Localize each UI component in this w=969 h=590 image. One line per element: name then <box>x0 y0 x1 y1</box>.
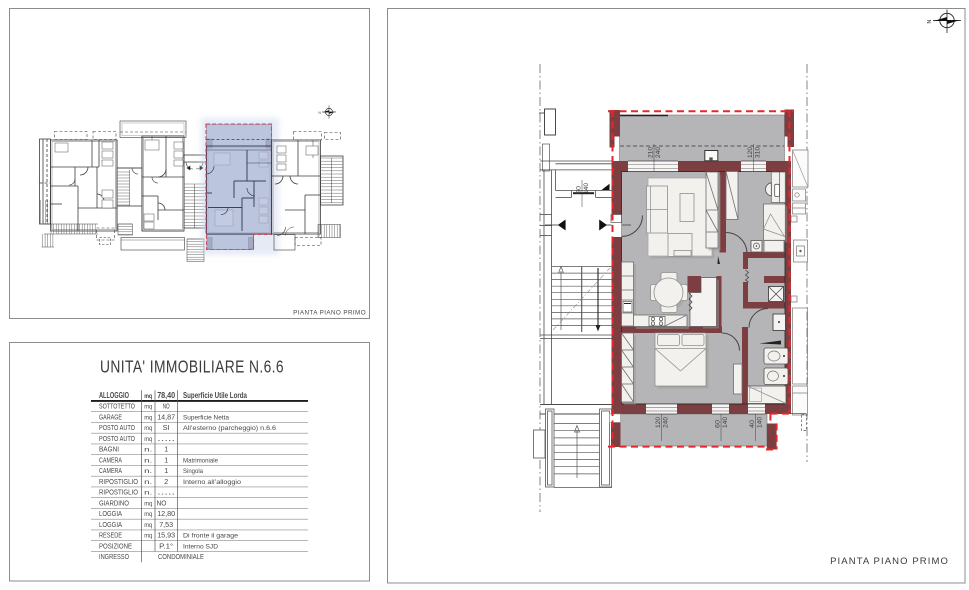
svg-text:CAMERA: CAMERA <box>99 455 122 464</box>
svg-text:POSIZIONE: POSIZIONE <box>99 542 132 551</box>
svg-text:SOTTOTETTO: SOTTOTETTO <box>99 402 135 411</box>
svg-text:mq: mq <box>144 414 152 421</box>
svg-text:CAMERA: CAMERA <box>99 466 122 475</box>
svg-text:RIPOSTIGLIO: RIPOSTIGLIO <box>99 477 138 486</box>
svg-text:mq: mq <box>144 436 152 443</box>
svg-text:n.: n. <box>144 457 152 464</box>
svg-text:1: 1 <box>164 445 168 454</box>
svg-text:mq: mq <box>144 533 152 540</box>
svg-text:90: 90 <box>576 185 582 194</box>
svg-text:120: 120 <box>656 416 662 428</box>
svg-text:mq: mq <box>144 425 152 432</box>
svg-text:60: 60 <box>715 419 721 428</box>
svg-text:ALLOGGIO: ALLOGGIO <box>99 391 129 400</box>
svg-text:Di fronte il garage: Di fronte il garage <box>183 533 238 540</box>
svg-text:1: 1 <box>164 466 168 475</box>
svg-text:240: 240 <box>664 416 670 428</box>
svg-text:1: 1 <box>164 455 168 464</box>
svg-text:15,93: 15,93 <box>157 531 175 540</box>
svg-text:120: 120 <box>748 146 754 158</box>
svg-text:2: 2 <box>164 477 168 486</box>
svg-text:140: 140 <box>584 182 590 194</box>
svg-text:RESEDE: RESEDE <box>99 531 122 540</box>
svg-text:Matrimoniale: Matrimoniale <box>183 457 218 464</box>
svg-text:POSTO AUTO: POSTO AUTO <box>99 434 135 443</box>
svg-text:7,53: 7,53 <box>159 520 173 529</box>
svg-text:78,40: 78,40 <box>157 391 175 400</box>
svg-text:PIANTA PIANO PRIMO: PIANTA PIANO PRIMO <box>293 310 366 317</box>
svg-text:mq: mq <box>144 522 152 529</box>
svg-text:Superficie Netta: Superficie Netta <box>183 414 229 421</box>
svg-text:NO: NO <box>157 498 167 507</box>
svg-text:RIPOSTIGLIO: RIPOSTIGLIO <box>99 488 138 497</box>
svg-text:n.: n. <box>144 490 152 497</box>
svg-text:.....: ..... <box>157 434 175 443</box>
svg-text:BAGNI: BAGNI <box>99 445 119 454</box>
svg-text:N: N <box>927 20 933 24</box>
svg-text:n.: n. <box>144 447 152 454</box>
svg-text:GIARDINO: GIARDINO <box>99 498 129 507</box>
svg-text:P.1°: P.1° <box>159 542 173 551</box>
svg-text:.....: ..... <box>157 488 175 497</box>
svg-text:INGRESSO: INGRESSO <box>99 552 129 561</box>
svg-text:140: 140 <box>758 416 764 428</box>
svg-text:140: 140 <box>723 416 729 428</box>
svg-text:LOGGIA: LOGGIA <box>99 520 122 529</box>
svg-text:All’esterno (parcheggio) n.6: All’esterno (parcheggio) n.6.6 <box>183 425 276 432</box>
svg-text:n.: n. <box>144 468 152 475</box>
svg-text:Interno SJD: Interno SJD <box>183 544 218 551</box>
svg-text:n.: n. <box>144 479 152 486</box>
svg-text:SI: SI <box>163 423 170 432</box>
svg-text:Interno all’alloggio: Interno all’alloggio <box>183 479 241 486</box>
svg-text:NO: NO <box>163 402 170 411</box>
svg-text:GARAGE: GARAGE <box>99 412 122 421</box>
svg-text:CONDOMINIALE: CONDOMINIALE <box>158 552 204 561</box>
svg-text:12,80: 12,80 <box>157 509 175 518</box>
svg-text:14,87: 14,87 <box>157 412 175 421</box>
svg-text:PIANTA PIANO PRIMO: PIANTA PIANO PRIMO <box>830 556 949 567</box>
svg-text:240: 240 <box>656 146 662 158</box>
svg-text:Singola: Singola <box>183 468 203 475</box>
svg-text:210: 210 <box>648 146 654 158</box>
svg-text:mq: mq <box>144 500 152 507</box>
svg-text:mq: mq <box>144 404 152 411</box>
svg-text:UNITA' IMMOBILIARE N.6.6: UNITA' IMMOBILIARE N.6.6 <box>100 357 284 377</box>
svg-text:Superficie Utile Lorda: Superficie Utile Lorda <box>183 391 247 400</box>
svg-text:310: 310 <box>756 146 762 158</box>
svg-text:POSTO AUTO: POSTO AUTO <box>99 423 135 432</box>
svg-text:LOGGIA: LOGGIA <box>99 509 122 518</box>
svg-text:mq: mq <box>144 393 152 400</box>
svg-text:mq: mq <box>144 511 152 518</box>
svg-text:40: 40 <box>750 419 756 428</box>
